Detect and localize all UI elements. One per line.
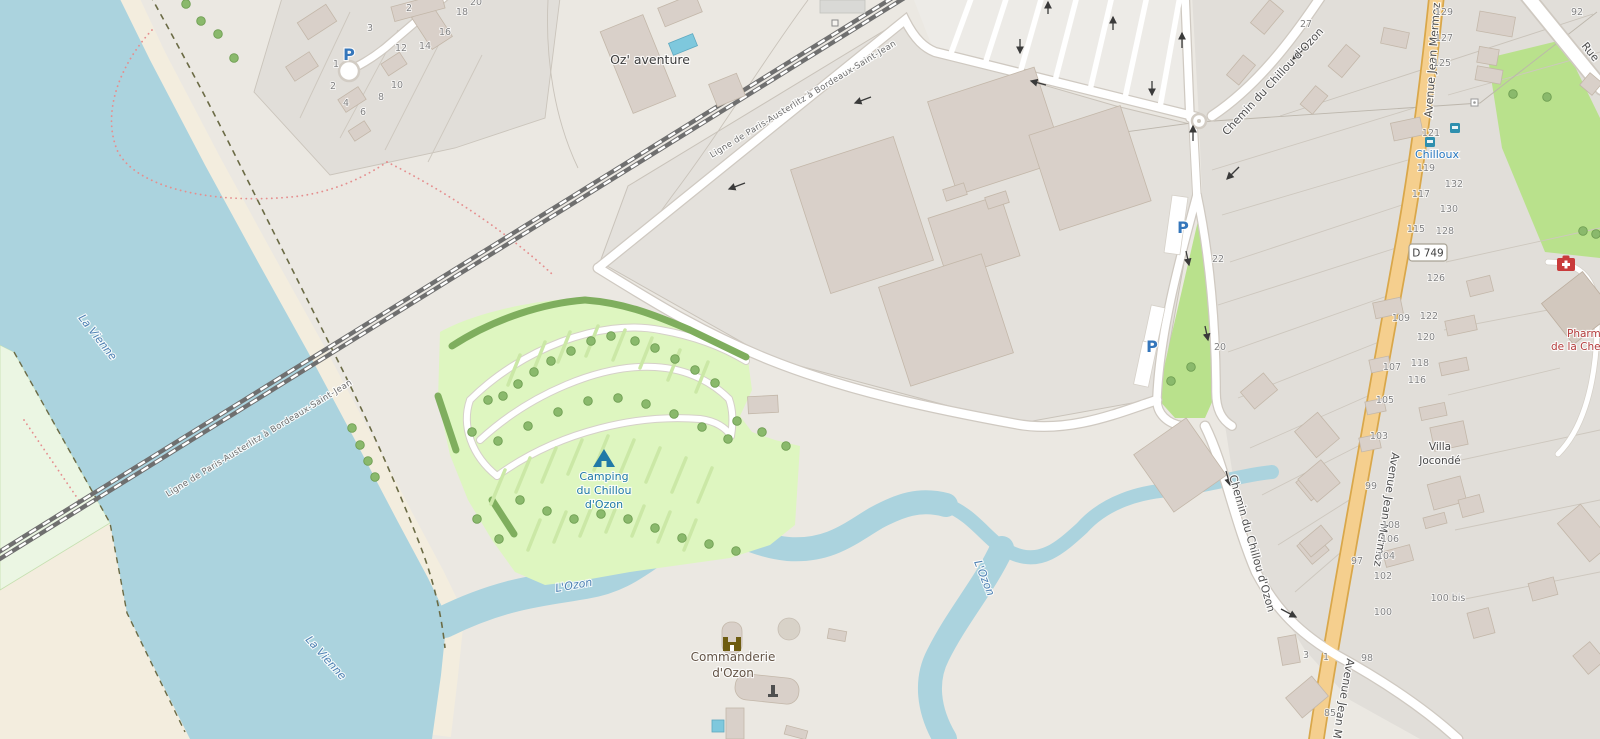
campsite-label: d'Ozon: [585, 498, 623, 511]
tree: [499, 392, 508, 401]
tree: [182, 0, 191, 8]
commanderie-label: Commanderie: [691, 650, 776, 664]
commanderie-label: d'Ozon: [712, 666, 754, 680]
tree: [651, 344, 660, 353]
house-number: 2: [406, 3, 412, 14]
house-number: 4: [343, 98, 349, 109]
house-number: 128: [1436, 226, 1454, 237]
house-number: 14: [419, 41, 431, 52]
parking-icon: P: [343, 45, 355, 64]
building: [748, 395, 779, 414]
house-number: 104: [1377, 551, 1395, 562]
pharmacy-label: Pharma: [1567, 328, 1600, 340]
tree: [1543, 93, 1552, 102]
tree: [230, 54, 239, 63]
tree: [711, 379, 720, 388]
tree: [516, 496, 525, 505]
tree: [356, 441, 365, 450]
tree: [1187, 363, 1196, 372]
campsite-label: du Chillou: [577, 484, 632, 497]
house-number: 18: [456, 7, 468, 18]
tree: [214, 30, 223, 39]
house-number: 102: [1374, 571, 1392, 582]
house-number: 117: [1412, 189, 1430, 200]
house-number: 3: [367, 23, 373, 34]
tree: [631, 337, 640, 346]
tree: [758, 428, 767, 437]
tree: [587, 337, 596, 346]
tree: [1167, 377, 1176, 386]
house-number: 100 bis: [1431, 593, 1466, 604]
tree: [554, 408, 563, 417]
house-number: 1: [1323, 652, 1329, 663]
tree: [514, 380, 523, 389]
house-number: 20: [1214, 342, 1226, 353]
house-number: 98: [1361, 653, 1373, 664]
house-number: 3: [1303, 650, 1309, 661]
tree: [1509, 90, 1518, 99]
house-number: 106: [1381, 534, 1399, 545]
building: [1477, 46, 1499, 65]
villa-label: Jocondé: [1418, 455, 1461, 467]
tree: [547, 357, 556, 366]
house-number: 6: [360, 107, 366, 118]
round-structure: [778, 618, 800, 640]
tree: [484, 396, 493, 405]
house-number: 1: [333, 59, 339, 70]
road-ref-label: D 749: [1412, 248, 1443, 260]
camp-loop: [729, 399, 732, 436]
campsite-label: Camping: [579, 470, 628, 483]
bus-stop-label: Chilloux: [1415, 148, 1460, 161]
osm-map-canvas[interactable]: D 749 Avenue Jean Mermoz Avenue Jean Mer…: [0, 0, 1600, 739]
tree: [607, 332, 616, 341]
tree: [733, 417, 742, 426]
house-number: 8: [378, 92, 384, 103]
house-number: 118: [1411, 358, 1429, 369]
pharmacy-label: de la Che: [1551, 341, 1600, 353]
parking-icon: P: [1177, 218, 1189, 237]
house-number: 115: [1407, 224, 1425, 235]
mini-roundabout-center: [1197, 119, 1201, 123]
parking-icon: P: [1146, 337, 1158, 356]
house-number: 2: [330, 81, 336, 92]
house-number: 116: [1408, 375, 1426, 386]
tree: [495, 535, 504, 544]
house-number: 129: [1435, 7, 1453, 18]
tree: [543, 507, 552, 516]
tree: [348, 424, 357, 433]
road-ref-badge: D 749: [1409, 244, 1447, 261]
tree: [670, 410, 679, 419]
house-number: 132: [1445, 179, 1463, 190]
house-number: 126: [1427, 273, 1445, 284]
house-number: 16: [439, 27, 451, 38]
house-number: 20: [470, 0, 482, 8]
villa-label: Villa: [1429, 441, 1451, 453]
tent-door: [602, 461, 607, 467]
house-number: 130: [1440, 204, 1458, 215]
cul-de-sac: [339, 61, 359, 81]
house-number: 27: [1300, 19, 1312, 30]
map-svg[interactable]: D 749 Avenue Jean Mermoz Avenue Jean Mer…: [0, 0, 1600, 739]
house-number: 103: [1370, 431, 1388, 442]
house-number: 122: [1420, 311, 1438, 322]
house-number: 109: [1392, 313, 1410, 324]
house-number: 108: [1382, 520, 1400, 531]
tree: [691, 366, 700, 375]
tree: [570, 515, 579, 524]
house-number: 127: [1435, 33, 1453, 44]
tree: [651, 524, 660, 533]
tree: [724, 435, 733, 444]
tree: [371, 473, 380, 482]
tree: [473, 515, 482, 524]
tree: [468, 428, 477, 437]
tree: [614, 394, 623, 403]
tree: [782, 442, 791, 451]
tree: [705, 540, 714, 549]
tree: [624, 515, 633, 524]
tree: [642, 400, 651, 409]
tree: [524, 422, 533, 431]
house-number: 121: [1422, 128, 1440, 139]
tree: [732, 547, 741, 556]
gate-icon: [832, 20, 838, 26]
tree: [494, 437, 503, 446]
adventure-park-label: Oz' aventure: [610, 52, 690, 67]
house-number: 10: [391, 80, 403, 91]
crossing-icon: [1471, 99, 1478, 106]
house-number: 92: [1571, 7, 1583, 18]
tree: [698, 423, 707, 432]
road-chemin: [1185, 0, 1190, 118]
house-number: 85: [1324, 708, 1336, 719]
tree: [364, 457, 373, 466]
tree: [530, 368, 539, 377]
building: [820, 0, 865, 13]
house-number: 99: [1365, 481, 1377, 492]
tree: [1579, 227, 1588, 236]
house-number: 12: [395, 43, 407, 54]
tree: [678, 534, 687, 543]
house-number: 100: [1374, 607, 1392, 618]
house-number: 107: [1383, 362, 1401, 373]
house-number: 97: [1351, 556, 1363, 567]
tree: [1592, 230, 1600, 239]
house-number: 120: [1417, 332, 1435, 343]
pool: [712, 720, 724, 732]
tree: [567, 347, 576, 356]
tree: [584, 397, 593, 406]
house-number: 22: [1212, 254, 1224, 265]
house-number: 105: [1376, 395, 1394, 406]
tree: [197, 17, 206, 26]
tree: [671, 355, 680, 364]
bus-stop-icon: [1450, 123, 1460, 133]
building: [726, 708, 744, 739]
house-number: 119: [1417, 163, 1435, 174]
house-number: 125: [1433, 58, 1451, 69]
